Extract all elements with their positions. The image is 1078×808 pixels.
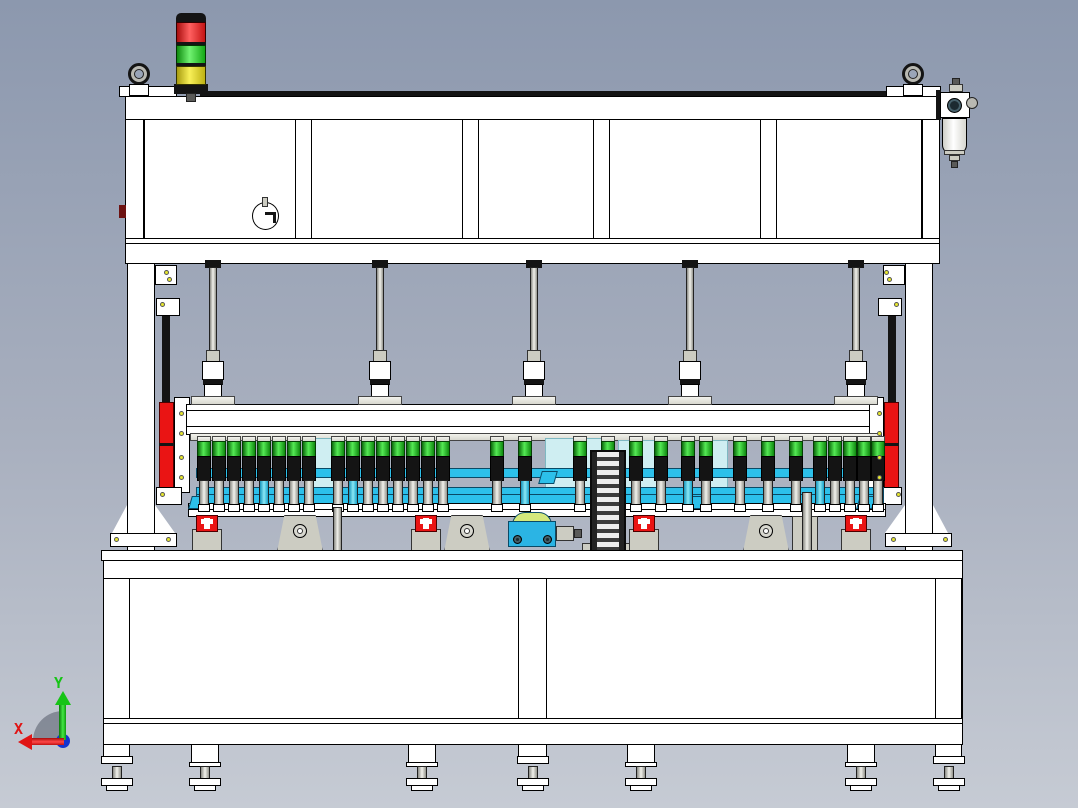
rail-bracket-top-right — [878, 298, 902, 316]
spindle-base — [668, 396, 712, 405]
cylinder-cap — [813, 441, 827, 457]
frame-bottom-line — [125, 243, 940, 244]
cylinder-cap — [828, 441, 842, 457]
cylinder-cap — [654, 441, 668, 457]
cylinder-rod — [244, 480, 254, 507]
cylinder-body — [421, 456, 435, 481]
cylinder-foot — [700, 504, 712, 512]
frame-post[interactable] — [760, 119, 777, 239]
cylinder-cap — [242, 441, 256, 457]
cylinder-body — [699, 456, 713, 481]
spindle-collar — [369, 361, 391, 380]
cylinder-cap — [629, 441, 643, 457]
spindle-base — [191, 396, 235, 405]
cylinder-rod — [378, 480, 388, 507]
bolt-dot — [887, 277, 892, 282]
tower-segment-yellow[interactable] — [176, 66, 206, 85]
axis-x-label: X — [14, 722, 23, 737]
spindle-base — [834, 396, 878, 405]
cylinder-rod — [492, 480, 502, 507]
cylinder-rod — [259, 480, 269, 507]
bolt-dot — [160, 492, 165, 497]
column-right-gusset-outer — [933, 505, 948, 533]
axis-y-shaft — [59, 703, 66, 740]
cylinder-foot — [491, 504, 503, 512]
stand-bolt — [759, 524, 773, 538]
cylinder-foot — [273, 504, 285, 512]
bolt-dot — [179, 475, 184, 480]
cylinder-body — [302, 456, 316, 481]
clamp-slot-h — [850, 519, 862, 524]
cylinder-foot — [630, 504, 642, 512]
cylinder-cap — [272, 441, 286, 457]
cylinder-rod — [859, 480, 869, 507]
rail-bracket-top-left — [156, 298, 180, 316]
cylinder-cap — [436, 441, 450, 457]
cylinder-body — [361, 456, 375, 481]
cylinder-rod — [423, 480, 433, 507]
cylinder-foot — [407, 504, 419, 512]
spindle-rod — [376, 267, 384, 351]
column-right-top-bracket — [883, 265, 905, 285]
cylinder-rod — [229, 480, 239, 507]
clamp-slot-h — [420, 519, 432, 524]
clamp-slot-h — [201, 519, 213, 524]
column-left[interactable] — [127, 263, 155, 553]
conveyor-bar-lower[interactable] — [196, 487, 884, 504]
cylinder-rod — [520, 480, 530, 507]
bolt-dot — [894, 302, 899, 307]
cylinder-cap — [843, 441, 857, 457]
bolt-dot — [891, 537, 896, 542]
cylinder-cap — [391, 441, 405, 457]
tower-segment-red[interactable] — [176, 22, 206, 43]
clamp-slot-h — [638, 519, 650, 524]
cylinder-body — [843, 456, 857, 481]
conveyor-bar-line — [196, 494, 884, 495]
cylinder-cap — [287, 441, 301, 457]
frame-post[interactable] — [295, 119, 312, 239]
foot-pad-lower — [522, 785, 544, 791]
spindle-collar — [523, 361, 545, 380]
cylinder-body — [272, 456, 286, 481]
cylinder-body — [391, 456, 405, 481]
cylinder-body — [331, 456, 345, 481]
cylinder-foot — [228, 504, 240, 512]
spindle-base — [512, 396, 556, 405]
cylinder-body — [761, 456, 775, 481]
cylinder-cap — [227, 441, 241, 457]
cylinder-rod — [735, 480, 745, 507]
filter-head-screw[interactable] — [947, 98, 962, 113]
filter-nipple-cap — [949, 84, 963, 92]
foot-pad-lower — [630, 785, 652, 791]
axis-y-arrowhead — [55, 691, 71, 705]
spindle-collar — [845, 361, 867, 380]
cylinder-cap — [421, 441, 435, 457]
frame-post[interactable] — [593, 119, 610, 239]
foot-block — [408, 744, 436, 763]
cylinder-foot — [682, 504, 694, 512]
foot-plate — [517, 756, 549, 764]
eye-bolt-hole — [908, 69, 918, 79]
cylinder-cap — [376, 441, 390, 457]
silver-post-2 — [802, 492, 812, 552]
cylinder-body — [629, 456, 643, 481]
foot-plate — [933, 756, 965, 764]
filter-knob[interactable] — [966, 97, 978, 109]
foot-block — [847, 744, 875, 763]
axis-triad: Y X — [0, 660, 120, 808]
cylinder-body — [789, 456, 803, 481]
top-beam[interactable] — [125, 96, 940, 120]
cylinder-body — [813, 456, 827, 481]
spindle-rod — [852, 267, 860, 351]
cylinder-cap — [331, 441, 345, 457]
gauge-tab — [262, 197, 268, 207]
spindle-rod — [530, 267, 538, 351]
pump-screw-right — [543, 535, 552, 544]
cylinder-cap — [302, 441, 316, 457]
stand-bolt — [293, 524, 307, 538]
cylinder-cap — [406, 441, 420, 457]
cylinder-rod — [701, 480, 711, 507]
column-left-gusset-inner — [112, 505, 127, 533]
gauge-mark-v — [273, 212, 276, 223]
cylinder-rod — [333, 480, 343, 507]
cylinder-cap — [346, 441, 360, 457]
bolt-dot — [164, 270, 169, 275]
bolt-dot — [166, 537, 171, 542]
cylinder-cap — [257, 441, 271, 457]
cylinder-body — [212, 456, 226, 481]
cylinder-body — [242, 456, 256, 481]
cylinder-foot — [258, 504, 270, 512]
foot-block — [191, 744, 219, 763]
stand-bolt — [460, 524, 474, 538]
spindle-rod — [686, 267, 694, 351]
bolt-dot — [896, 492, 901, 497]
cylinder-body — [518, 456, 532, 481]
bolt-dot — [114, 537, 119, 542]
frame-inner-edge-left — [143, 119, 145, 239]
cylinder-foot — [872, 504, 884, 512]
bolt-dot — [877, 455, 882, 460]
cylinder-rod — [408, 480, 418, 507]
cylinder-body — [857, 456, 871, 481]
cylinder-foot — [213, 504, 225, 512]
cylinder-cap — [361, 441, 375, 457]
cylinder-cap — [681, 441, 695, 457]
cylinder-foot — [377, 504, 389, 512]
clamp-base — [411, 529, 441, 552]
foot-pad-lower — [194, 785, 216, 791]
bolt-dot — [877, 475, 882, 480]
cylinder-body — [490, 456, 504, 481]
column-left-top-bracket — [155, 265, 177, 285]
clamp-base — [629, 529, 659, 552]
cylinder-body — [197, 456, 211, 481]
cylinder-body — [828, 456, 842, 481]
cylinder-foot — [829, 504, 841, 512]
frame-inner-edge-right — [921, 119, 923, 239]
cylinder-rod — [214, 480, 224, 507]
column-right-gusset-inner — [885, 505, 905, 533]
cylinder-rod — [289, 480, 299, 507]
cylinder-cap — [518, 441, 532, 457]
cylinder-rod — [438, 480, 448, 507]
cylinder-foot — [734, 504, 746, 512]
cylinder-cap — [212, 441, 226, 457]
bolt-dot — [179, 455, 184, 460]
cylinder-body — [573, 456, 587, 481]
tower-pole — [186, 93, 196, 102]
pump-screw-left — [513, 535, 522, 544]
cylinder-rod — [873, 480, 883, 507]
eye-bolt-base — [903, 84, 923, 96]
bolt-dot — [160, 302, 165, 307]
bolt-dot — [943, 537, 948, 542]
cylinder-rod — [815, 480, 825, 507]
cylinder-foot — [519, 504, 531, 512]
carriage-left[interactable] — [159, 402, 174, 490]
carriage-right-split — [884, 443, 899, 446]
column-right[interactable] — [905, 263, 933, 553]
filter-fitting-2 — [951, 161, 958, 168]
cylinder-rod — [683, 480, 693, 507]
cylinder-foot — [392, 504, 404, 512]
side-nub[interactable] — [119, 205, 126, 218]
cylinder-rod — [631, 480, 641, 507]
eye-bolt-base — [129, 84, 149, 96]
carriage-right[interactable] — [884, 402, 899, 490]
eye-bolt-hole — [134, 69, 144, 79]
cylinder-foot — [198, 504, 210, 512]
cylinder-body — [287, 456, 301, 481]
press-beam-line-top — [186, 410, 870, 411]
cylinder-body — [654, 456, 668, 481]
foot-pad-lower — [938, 785, 960, 791]
cylinder-cap — [699, 441, 713, 457]
cylinder-foot — [347, 504, 359, 512]
cylinder-body — [376, 456, 390, 481]
table-rail-line — [103, 723, 963, 724]
cylinder-rod — [575, 480, 585, 507]
cylinder-cap — [490, 441, 504, 457]
column-left-gusset-outer — [155, 505, 175, 533]
cylinder-cap — [857, 441, 871, 457]
spindle-base — [358, 396, 402, 405]
cylinder-body — [436, 456, 450, 481]
press-beam-line-bottom — [186, 426, 870, 427]
bolt-dot — [884, 270, 889, 275]
frame-post[interactable] — [462, 119, 479, 239]
bolt-dot — [167, 277, 172, 282]
cylinder-foot — [422, 504, 434, 512]
table-band[interactable] — [103, 560, 963, 579]
cylinder-body — [257, 456, 271, 481]
cylinder-rod — [791, 480, 801, 507]
cylinder-cap — [789, 441, 803, 457]
cylinder-rod — [363, 480, 373, 507]
bolt-dot — [179, 411, 184, 416]
cylinder-rod — [274, 480, 284, 507]
clamp-base — [841, 529, 871, 552]
cylinder-foot — [762, 504, 774, 512]
foot-block — [627, 744, 655, 763]
cylinder-foot — [288, 504, 300, 512]
cylinder-rod — [830, 480, 840, 507]
cylinder-body — [346, 456, 360, 481]
cylinder-rod — [348, 480, 358, 507]
cylinder-body — [227, 456, 241, 481]
cylinder-foot — [574, 504, 586, 512]
pump-shaft — [574, 529, 582, 538]
foot-pad-lower — [411, 785, 433, 791]
cylinder-body — [733, 456, 747, 481]
cylinder-body — [406, 456, 420, 481]
cylinder-cap — [573, 441, 587, 457]
cylinder-cap — [761, 441, 775, 457]
cylinder-rod — [845, 480, 855, 507]
carriage-left-split — [159, 443, 174, 446]
cylinder-foot — [303, 504, 315, 512]
cylinder-cap — [197, 441, 211, 457]
frame-body-panel[interactable] — [125, 119, 940, 239]
cylinder-foot — [844, 504, 856, 512]
spindle-collar — [679, 361, 701, 380]
cylinder-body — [681, 456, 695, 481]
clamp-base — [192, 529, 222, 552]
bolt-dot — [877, 431, 882, 436]
cylinder-rod — [199, 480, 209, 507]
cad-viewport[interactable]: Y X — [0, 0, 1078, 808]
cylinder-foot — [858, 504, 870, 512]
cylinder-foot — [655, 504, 667, 512]
axis-y-label: Y — [54, 676, 63, 691]
chain[interactable] — [590, 450, 626, 552]
cylinder-foot — [790, 504, 802, 512]
cylinder-rod — [304, 480, 314, 507]
cylinder-foot — [362, 504, 374, 512]
pump-motor — [556, 526, 574, 541]
cylinder-foot — [243, 504, 255, 512]
cylinder-rod — [656, 480, 666, 507]
cylinder-rod — [763, 480, 773, 507]
axis-x-shaft — [30, 738, 64, 745]
cylinder-cap — [733, 441, 747, 457]
filter-bowl[interactable] — [942, 118, 967, 154]
press-beam[interactable] — [186, 404, 870, 435]
silver-post-1 — [333, 507, 342, 552]
cylinder-foot — [437, 504, 449, 512]
spindle-collar — [202, 361, 224, 380]
bolt-dot — [179, 431, 184, 436]
bolt-dot — [877, 411, 882, 416]
cylinder-rod — [393, 480, 403, 507]
tower-segment-green[interactable] — [176, 45, 206, 64]
foot-pad-lower — [850, 785, 872, 791]
cylinder-foot — [814, 504, 826, 512]
spindle-rod — [209, 267, 217, 351]
